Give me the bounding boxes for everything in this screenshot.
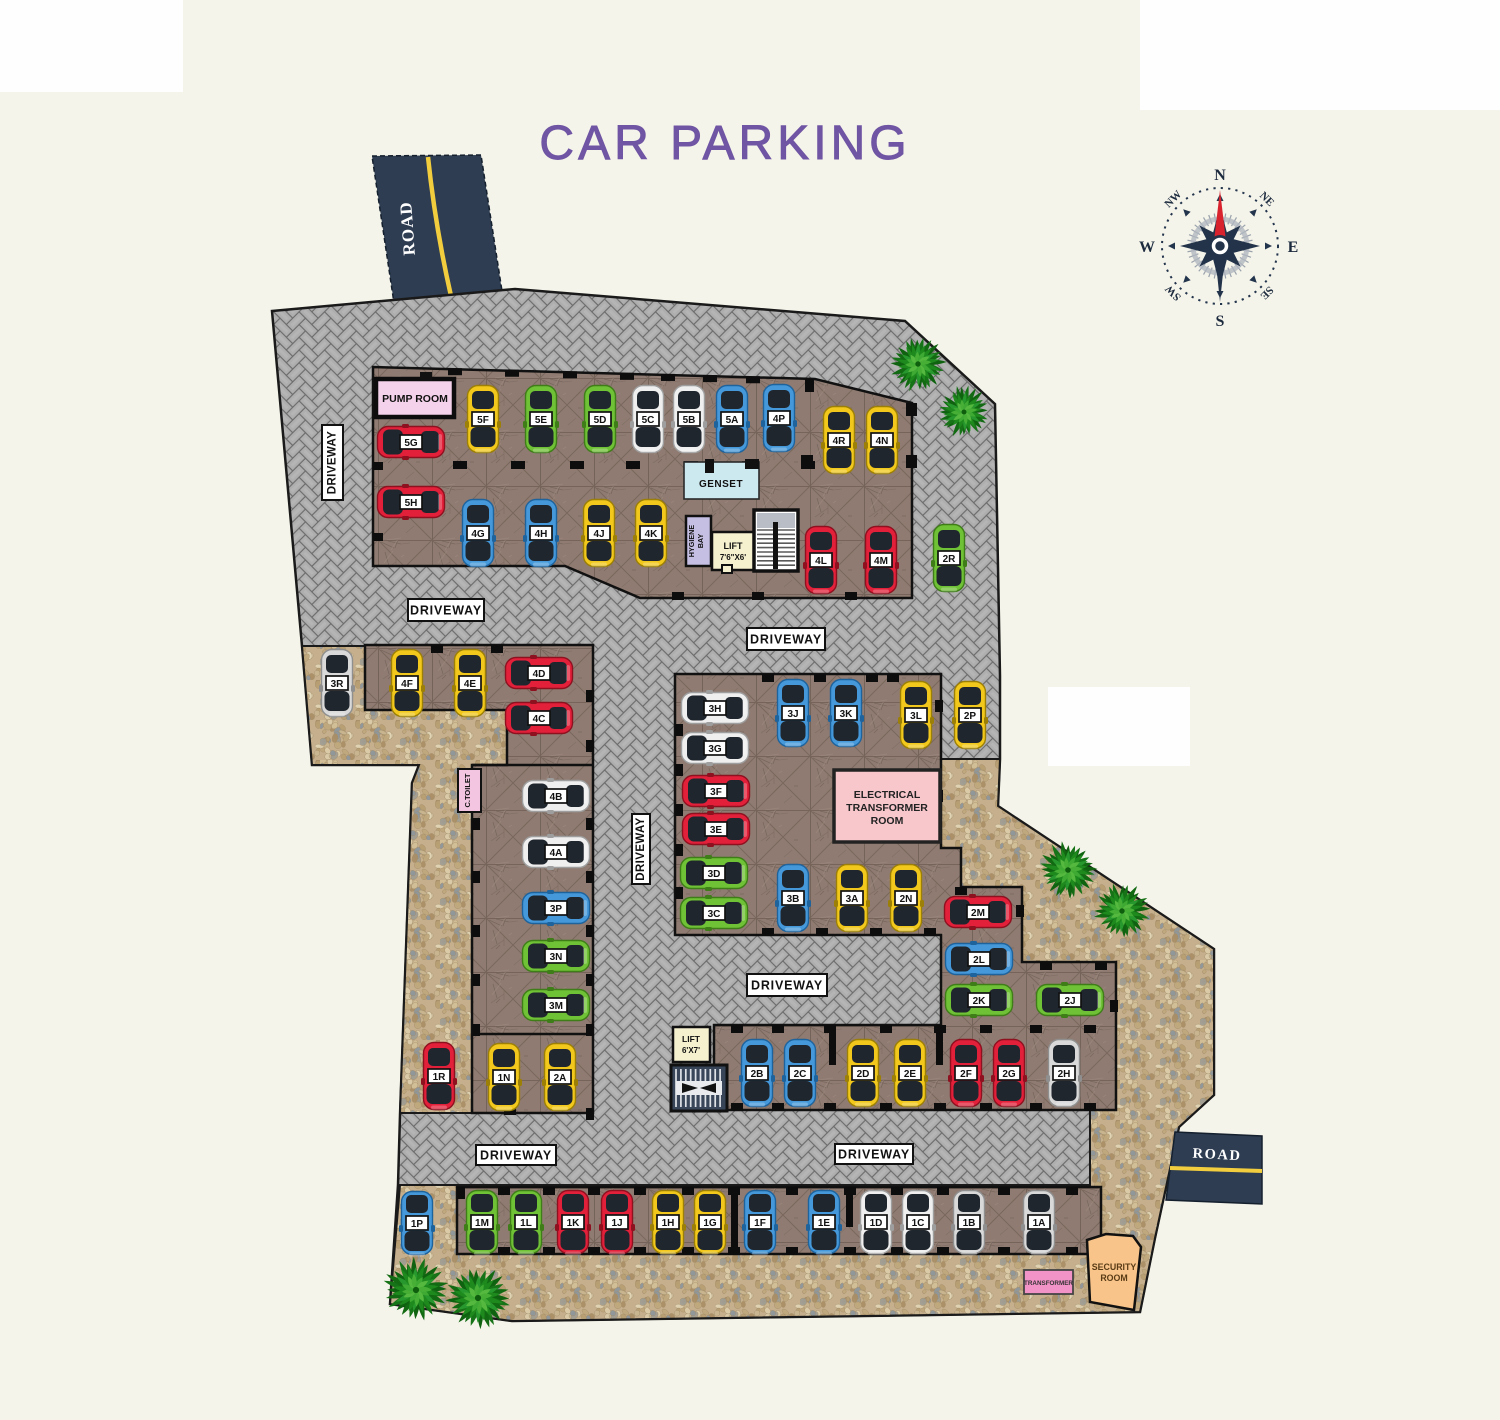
svg-text:2E: 2E — [904, 1069, 917, 1080]
svg-text:1D: 1D — [870, 1218, 883, 1229]
svg-text:4M: 4M — [874, 556, 888, 567]
svg-text:TRANSFORMER: TRANSFORMER — [846, 802, 928, 814]
svg-text:C.TOILET: C.TOILET — [463, 773, 472, 807]
svg-text:5B: 5B — [683, 415, 696, 426]
svg-text:1G: 1G — [703, 1218, 717, 1229]
svg-text:1R: 1R — [433, 1072, 447, 1083]
svg-text:6'X7': 6'X7' — [682, 1046, 700, 1055]
svg-text:4G: 4G — [471, 529, 485, 540]
svg-text:4E: 4E — [464, 679, 477, 690]
svg-text:1L: 1L — [520, 1218, 532, 1229]
svg-text:2J: 2J — [1064, 996, 1075, 1007]
svg-text:5H: 5H — [405, 498, 418, 509]
svg-text:2P: 2P — [964, 711, 977, 722]
svg-text:5G: 5G — [404, 438, 418, 449]
svg-text:E: E — [1288, 239, 1299, 256]
svg-text:5C: 5C — [642, 415, 655, 426]
svg-text:3A: 3A — [846, 894, 859, 905]
svg-text:ROAD: ROAD — [396, 201, 419, 256]
svg-text:3H: 3H — [709, 704, 722, 715]
svg-text:N: N — [1214, 167, 1226, 184]
svg-text:2G: 2G — [1002, 1069, 1016, 1080]
svg-text:2D: 2D — [857, 1069, 870, 1080]
svg-text:2L: 2L — [973, 955, 985, 966]
svg-text:4N: 4N — [876, 436, 889, 447]
svg-text:1K: 1K — [567, 1218, 581, 1229]
svg-text:1A: 1A — [1033, 1218, 1046, 1229]
svg-text:4C: 4C — [533, 714, 546, 725]
svg-text:2F: 2F — [960, 1069, 972, 1080]
svg-text:1P: 1P — [411, 1219, 424, 1230]
svg-text:2H: 2H — [1058, 1069, 1071, 1080]
svg-text:LIFT: LIFT — [682, 1034, 701, 1044]
svg-text:ROAD: ROAD — [1192, 1146, 1242, 1165]
svg-text:1N: 1N — [498, 1073, 511, 1084]
svg-text:3K: 3K — [840, 709, 854, 720]
svg-text:4P: 4P — [773, 414, 786, 425]
svg-text:1M: 1M — [475, 1218, 489, 1229]
svg-text:4B: 4B — [550, 792, 563, 803]
svg-text:3C: 3C — [708, 909, 721, 920]
svg-text:1F: 1F — [754, 1218, 766, 1229]
svg-text:ROOM: ROOM — [871, 815, 904, 827]
svg-text:ROOM: ROOM — [1100, 1273, 1127, 1283]
svg-text:3P: 3P — [550, 904, 563, 915]
svg-text:2K: 2K — [973, 996, 987, 1007]
svg-text:2N: 2N — [900, 894, 913, 905]
svg-text:5F: 5F — [477, 415, 489, 426]
svg-text:DRIVEWAY: DRIVEWAY — [751, 979, 823, 993]
svg-text:3N: 3N — [550, 952, 563, 963]
svg-text:SECURITY: SECURITY — [1092, 1262, 1137, 1272]
svg-text:4F: 4F — [401, 679, 413, 690]
svg-text:5D: 5D — [594, 415, 607, 426]
svg-text:CAR PARKING: CAR PARKING — [539, 117, 910, 170]
svg-text:W: W — [1139, 239, 1155, 256]
svg-text:3R: 3R — [331, 679, 345, 690]
svg-text:ELECTRICAL: ELECTRICAL — [854, 789, 921, 801]
svg-text:1C: 1C — [912, 1218, 925, 1229]
svg-text:DRIVEWAY: DRIVEWAY — [410, 604, 482, 618]
svg-text:3L: 3L — [910, 711, 922, 722]
svg-text:3E: 3E — [710, 825, 723, 836]
svg-text:DRIVEWAY: DRIVEWAY — [480, 1149, 552, 1163]
svg-text:HYGIENE: HYGIENE — [687, 525, 696, 558]
svg-text:TRANSFORMER: TRANSFORMER — [1024, 1280, 1073, 1287]
svg-text:3B: 3B — [787, 894, 800, 905]
svg-text:4K: 4K — [645, 529, 659, 540]
svg-text:4L: 4L — [815, 556, 827, 567]
svg-text:GENSET: GENSET — [699, 479, 743, 490]
svg-text:3M: 3M — [549, 1001, 563, 1012]
svg-text:3J: 3J — [787, 709, 798, 720]
svg-text:2B: 2B — [751, 1069, 764, 1080]
svg-text:1B: 1B — [963, 1218, 976, 1229]
svg-text:DRIVEWAY: DRIVEWAY — [750, 633, 822, 647]
svg-text:DRIVEWAY: DRIVEWAY — [635, 817, 647, 881]
svg-text:S: S — [1216, 313, 1225, 330]
svg-text:PUMP ROOM: PUMP ROOM — [382, 393, 448, 405]
svg-text:2C: 2C — [794, 1069, 807, 1080]
svg-text:5E: 5E — [535, 415, 548, 426]
svg-text:4R: 4R — [833, 436, 847, 447]
svg-text:2A: 2A — [554, 1073, 567, 1084]
svg-text:5A: 5A — [726, 415, 739, 426]
svg-text:1J: 1J — [611, 1218, 622, 1229]
svg-text:BAY: BAY — [696, 534, 705, 549]
svg-text:1E: 1E — [818, 1218, 831, 1229]
svg-text:2M: 2M — [971, 908, 985, 919]
svg-text:3F: 3F — [710, 787, 722, 798]
svg-text:7'6"X6': 7'6"X6' — [720, 553, 746, 562]
svg-text:4J: 4J — [593, 529, 604, 540]
svg-text:4H: 4H — [535, 529, 548, 540]
svg-text:2R: 2R — [943, 554, 957, 565]
svg-text:3G: 3G — [708, 744, 722, 755]
svg-text:DRIVEWAY: DRIVEWAY — [327, 431, 339, 495]
svg-text:DRIVEWAY: DRIVEWAY — [838, 1148, 910, 1162]
svg-text:3D: 3D — [708, 869, 721, 880]
svg-text:4D: 4D — [533, 669, 546, 680]
svg-text:4A: 4A — [550, 848, 563, 859]
svg-text:1H: 1H — [662, 1218, 675, 1229]
svg-text:LIFT: LIFT — [724, 541, 743, 551]
